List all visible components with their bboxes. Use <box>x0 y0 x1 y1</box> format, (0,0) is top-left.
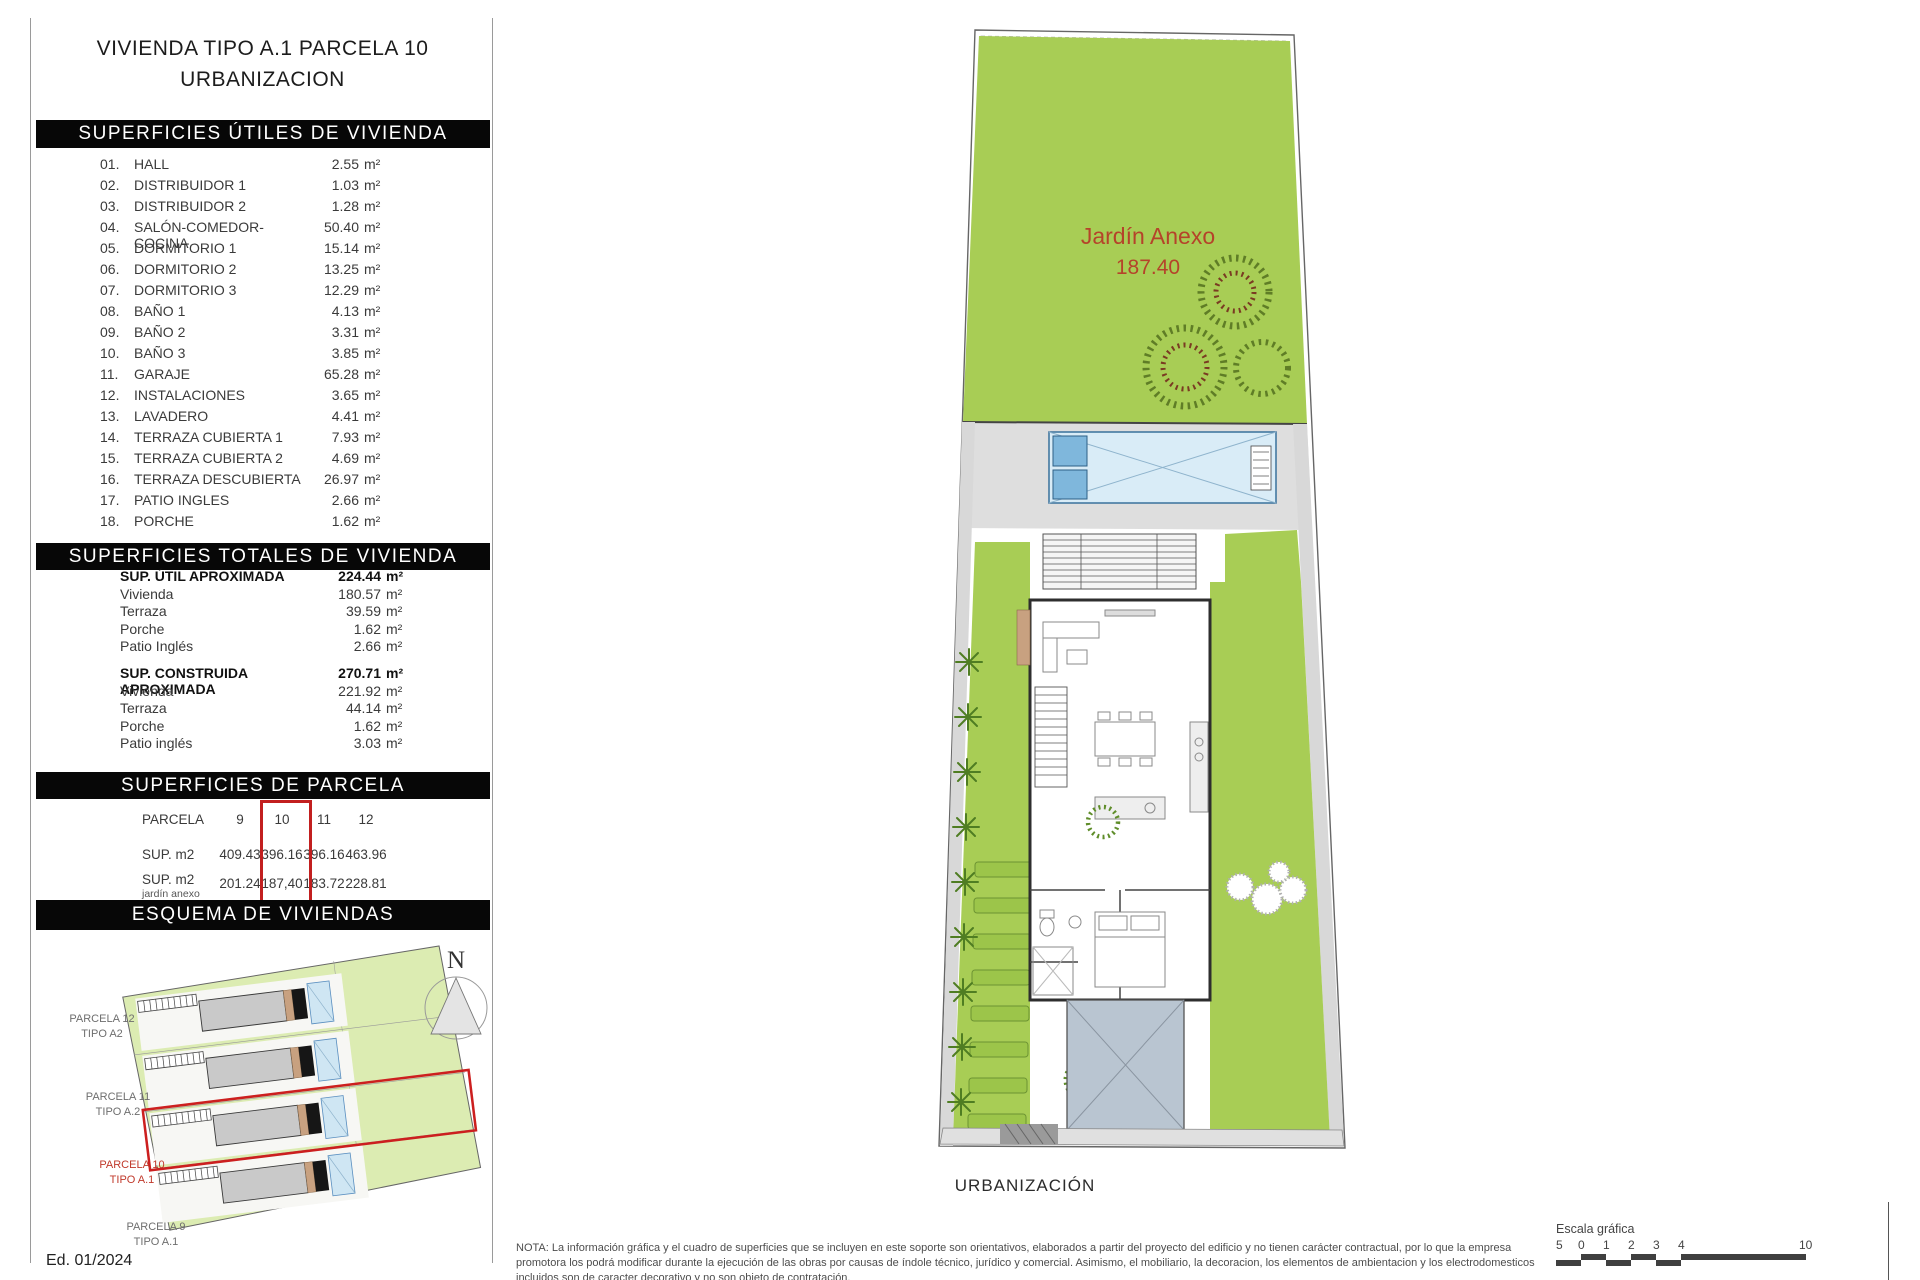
room-name: DORMITORIO 2 <box>134 261 307 277</box>
room-name: BAÑO 1 <box>134 303 307 319</box>
section-header-esquema: ESQUEMA DE VIVIENDAS <box>36 900 490 930</box>
room-area: 4.13 <box>307 303 359 319</box>
room-name: GARAJE <box>134 366 307 382</box>
table-row: Porche 1.62 m² <box>120 621 412 639</box>
area-unit: m² <box>359 219 390 235</box>
total-group-rows: Vivienda 221.92 m² Terraza 44.14 m² Porc… <box>120 683 412 753</box>
room-area: 1.28 <box>307 198 359 214</box>
driveway <box>1067 1000 1184 1130</box>
north-label: N <box>421 948 491 974</box>
area-unit: m² <box>359 450 390 466</box>
area-unit: m² <box>359 240 390 256</box>
parcela-row-sublabel: jardín anexo <box>142 888 200 900</box>
title-line1: VIVIENDA TIPO A.1 PARCELA 10 <box>40 33 485 64</box>
room-name: DISTRIBUIDOR 1 <box>134 177 307 193</box>
section-header-parcela: SUPERFICIES DE PARCELA <box>36 772 490 799</box>
area-unit: m² <box>359 429 390 445</box>
room-name: DORMITORIO 3 <box>134 282 307 298</box>
utiles-table: 01. HALL 2.55 m² 02. DISTRIBUIDOR 1 1.03… <box>100 156 390 534</box>
scale-tick: 3 <box>1653 1238 1660 1252</box>
area-unit: m² <box>359 324 390 340</box>
scale-ticks: 012345 10 <box>1556 1238 1826 1254</box>
scale-tick: 1 <box>1603 1238 1610 1252</box>
esquema-label-parcela12: PARCELA 12TIPO A2 <box>42 1012 162 1042</box>
table-row: 01. HALL 2.55 m² <box>100 156 390 177</box>
scale-tick: 10 <box>1799 1238 1812 1252</box>
scale-tick: 0 <box>1578 1238 1585 1252</box>
table-row: 02. DISTRIBUIDOR 1 1.03 m² <box>100 177 390 198</box>
table-row: Terraza 39.59 m² <box>120 603 412 621</box>
area-unit: m² <box>359 492 390 508</box>
room-number: 18. <box>100 513 134 529</box>
room-area: 3.85 <box>307 345 359 361</box>
totales-block: SUP. ÚTIL APROXIMADA 224.44 m² Vivienda … <box>120 568 412 753</box>
table-row: Patio Inglés 2.66 m² <box>120 638 412 656</box>
room-number: 13. <box>100 408 134 424</box>
pool <box>1049 432 1276 503</box>
scale-tick: 2 <box>1628 1238 1635 1252</box>
room-number: 11. <box>100 366 134 382</box>
table-row: 04. SALÓN-COMEDOR-COCINA 50.40 m² <box>100 219 390 240</box>
table-row: 18. PORCHE 1.62 m² <box>100 513 390 534</box>
table-row: Vivienda 180.57 m² <box>120 586 412 604</box>
room-number: 01. <box>100 156 134 172</box>
room-area: 1.62 <box>307 513 359 529</box>
room-name: PORCHE <box>134 513 307 529</box>
title-line2: URBANIZACION <box>40 64 485 95</box>
room-area: 4.41 <box>307 408 359 424</box>
area-unit: m² <box>359 177 390 193</box>
room-area: 2.55 <box>307 156 359 172</box>
parcela-area: 463.96 <box>345 847 387 862</box>
total-group-header: SUP. ÚTIL APROXIMADA 224.44 m² <box>120 568 412 586</box>
table-row: 07. DORMITORIO 3 12.29 m² <box>100 282 390 303</box>
room-number: 10. <box>100 345 134 361</box>
table-row: 15. TERRAZA CUBIERTA 2 4.69 m² <box>100 450 390 471</box>
table-row: 09. BAÑO 2 3.31 m² <box>100 324 390 345</box>
room-area: 4.69 <box>307 450 359 466</box>
area-unit: m² <box>359 408 390 424</box>
room-number: 16. <box>100 471 134 487</box>
room-area: 1.03 <box>307 177 359 193</box>
room-name: DORMITORIO 1 <box>134 240 307 256</box>
area-unit: m² <box>359 513 390 529</box>
room-name: BAÑO 2 <box>134 324 307 340</box>
room-number: 12. <box>100 387 134 403</box>
total-group-header: SUP. CONSTRUIDA APROXIMADA 270.71 m² <box>120 665 412 683</box>
area-unit: m² <box>359 387 390 403</box>
table-row: 05. DORMITORIO 1 15.14 m² <box>100 240 390 261</box>
area-unit: m² <box>359 303 390 319</box>
area-unit: m² <box>359 282 390 298</box>
bed <box>1095 912 1165 987</box>
esquema-label-parcela10: PARCELA 10TIPO A.1 <box>72 1158 192 1188</box>
total-group-rows: Vivienda 180.57 m² Terraza 39.59 m² Porc… <box>120 586 412 656</box>
page-title: VIVIENDA TIPO A.1 PARCELA 10 URBANIZACIO… <box>40 33 485 95</box>
panel-left-border <box>30 18 31 1263</box>
scale-tick: 4 <box>1678 1238 1685 1252</box>
parcela-area: 409.43 <box>219 847 261 862</box>
parcela-number: 12 <box>345 812 387 827</box>
room-number: 03. <box>100 198 134 214</box>
room-number: 04. <box>100 219 134 235</box>
room-name: BAÑO 3 <box>134 345 307 361</box>
garden-label: Jardín Anexo <box>1081 223 1215 249</box>
room-number: 15. <box>100 450 134 466</box>
room-number: 06. <box>100 261 134 277</box>
parcela-row-label: SUP. m2 <box>142 872 194 887</box>
compass-icon <box>422 974 490 1042</box>
parcela-number: 9 <box>219 812 261 827</box>
room-area: 26.97 <box>307 471 359 487</box>
room-name: INSTALACIONES <box>134 387 307 403</box>
room-name: PATIO INGLES <box>134 492 307 508</box>
table-row: 06. DORMITORIO 2 13.25 m² <box>100 261 390 282</box>
room-area: 2.66 <box>307 492 359 508</box>
room-number: 07. <box>100 282 134 298</box>
room-area: 12.29 <box>307 282 359 298</box>
room-number: 05. <box>100 240 134 256</box>
table-row: Patio inglés 3.03 m² <box>120 735 412 753</box>
kitchen-counter <box>1190 722 1208 812</box>
room-number: 14. <box>100 429 134 445</box>
area-unit: m² <box>359 366 390 382</box>
table-row: Porche 1.62 m² <box>120 718 412 736</box>
room-number: 09. <box>100 324 134 340</box>
table-row: 14. TERRAZA CUBIERTA 1 7.93 m² <box>100 429 390 450</box>
scale-bar <box>1556 1254 1806 1267</box>
table-row: 13. LAVADERO 4.41 m² <box>100 408 390 429</box>
room-area: 15.14 <box>307 240 359 256</box>
scale-tick: 5 <box>1556 1238 1563 1252</box>
room-name: LAVADERO <box>134 408 307 424</box>
table-row: 08. BAÑO 1 4.13 m² <box>100 303 390 324</box>
table-row: 11. GARAJE 65.28 m² <box>100 366 390 387</box>
table-row: 03. DISTRIBUIDOR 2 1.28 m² <box>100 198 390 219</box>
area-unit: m² <box>359 198 390 214</box>
room-name: TERRAZA DESCUBIERTA <box>134 471 307 487</box>
disclaimer-note: NOTA: La información gráfica y el cuadro… <box>516 1241 1556 1280</box>
room-area: 13.25 <box>307 261 359 277</box>
sheet-right-border <box>1888 1202 1889 1280</box>
room-area: 3.31 <box>307 324 359 340</box>
room-name: TERRAZA CUBIERTA 1 <box>134 429 307 445</box>
parcela-garden-area: 201.24 <box>219 876 261 891</box>
table-row: 12. INSTALACIONES 3.65 m² <box>100 387 390 408</box>
site-plan: Jardín Anexo 187.40 <box>935 22 1350 1152</box>
room-area: 7.93 <box>307 429 359 445</box>
plan-caption: URBANIZACIÓN <box>900 1176 1150 1196</box>
table-row: Terraza 44.14 m² <box>120 700 412 718</box>
area-unit: m² <box>359 156 390 172</box>
room-area: 3.65 <box>307 387 359 403</box>
stairs <box>1035 687 1067 787</box>
parcela-garden-area: 228.81 <box>345 876 387 891</box>
parcela-row-label: SUP. m2 <box>142 847 194 862</box>
garden-area-value: 187.40 <box>1116 256 1180 279</box>
esquema-label-parcela11: PARCELA 11TIPO A.2 <box>58 1090 178 1120</box>
area-unit: m² <box>359 261 390 277</box>
room-name: TERRAZA CUBIERTA 2 <box>134 450 307 466</box>
north-compass: N <box>421 948 491 1047</box>
plan-sheet: VIVIENDA TIPO A.1 PARCELA 10 URBANIZACIO… <box>0 0 1920 1280</box>
table-row: Vivienda 221.92 m² <box>120 683 412 701</box>
edition-date: Ed. 01/2024 <box>46 1252 132 1270</box>
room-number: 02. <box>100 177 134 193</box>
room-number: 17. <box>100 492 134 508</box>
highlight-box-parcela-10 <box>260 800 312 906</box>
esquema-label-parcela9: PARCELA 9TIPO A.1 <box>96 1220 216 1250</box>
tv-bench <box>1105 610 1155 616</box>
room-area: 50.40 <box>307 219 359 235</box>
section-header-utiles: SUPERFICIES ÚTILES DE VIVIENDA <box>36 120 490 148</box>
room-area: 65.28 <box>307 366 359 382</box>
table-row: 16. TERRAZA DESCUBIERTA 26.97 m² <box>100 471 390 492</box>
room-name: HALL <box>134 156 307 172</box>
area-unit: m² <box>359 471 390 487</box>
area-unit: m² <box>359 345 390 361</box>
table-row: 17. PATIO INGLES 2.66 m² <box>100 492 390 513</box>
table-row: 10. BAÑO 3 3.85 m² <box>100 345 390 366</box>
pergola-louvers <box>1043 534 1196 589</box>
graphic-scale: Escala gráfica 012345 10 <box>1556 1222 1826 1267</box>
room-name: DISTRIBUIDOR 2 <box>134 198 307 214</box>
scale-label: Escala gráfica <box>1556 1222 1826 1236</box>
parcela-row-label: PARCELA <box>142 812 204 827</box>
section-header-totales: SUPERFICIES TOTALES DE VIVIENDA <box>36 543 490 570</box>
room-number: 08. <box>100 303 134 319</box>
